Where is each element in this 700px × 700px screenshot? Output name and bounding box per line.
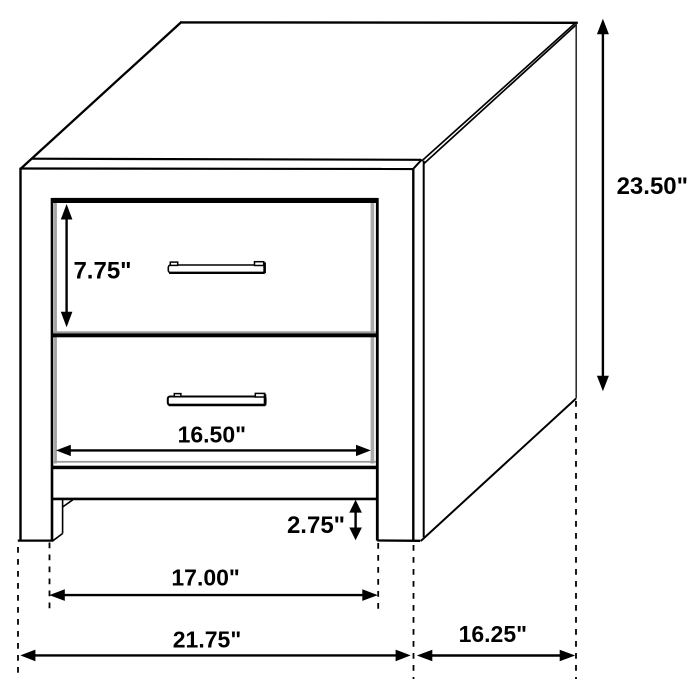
svg-text:21.75": 21.75"	[173, 627, 241, 653]
svg-text:2.75": 2.75"	[287, 512, 345, 539]
svg-text:16.25": 16.25"	[459, 621, 527, 647]
svg-text:16.50": 16.50"	[178, 422, 246, 448]
svg-text:23.50": 23.50"	[617, 173, 688, 200]
svg-text:17.00": 17.00"	[171, 565, 239, 591]
svg-text:7.75": 7.75"	[73, 258, 131, 285]
